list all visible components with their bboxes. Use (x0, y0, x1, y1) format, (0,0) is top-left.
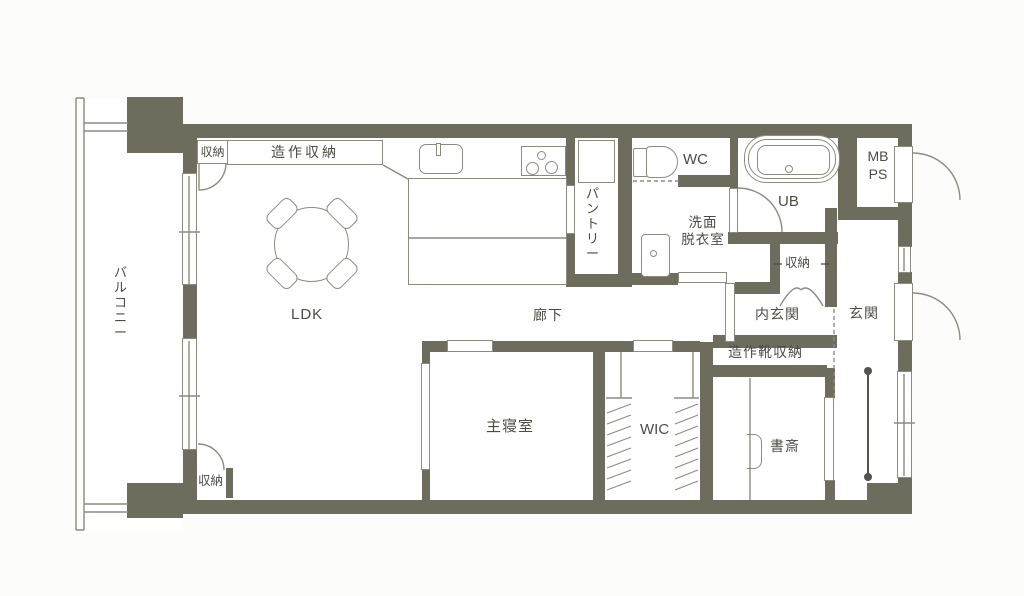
wall-study-right-b (825, 480, 835, 502)
wall-ub-mbps-divider (838, 138, 857, 208)
wall-washroom-right (770, 232, 780, 283)
sliding-partition-bedroom-ldk (421, 363, 430, 470)
ldk-label: LDK (291, 306, 323, 325)
wall-pantry-wc (618, 138, 632, 278)
wall-mbps-bottom (838, 207, 912, 220)
study-chair-icon (747, 434, 762, 469)
wall-bedroom-left-a (422, 341, 430, 363)
bathtub-inner (757, 145, 830, 175)
washroom-label: 洗面 脱衣室 (673, 215, 733, 249)
window-ldk-upper (182, 173, 197, 285)
storage-genkan-label: 収納 (785, 256, 810, 272)
kitchen-island (408, 178, 567, 285)
door-arc-mbps (913, 153, 960, 200)
window-genkan-small (898, 246, 911, 273)
closet-box-top-left: 収納 (197, 140, 228, 164)
stove-burner-icon (537, 151, 546, 160)
wall-corridor-top-pantry (566, 274, 632, 287)
wall-wc-ub-divider (730, 138, 738, 188)
wall-bedroom-left-b (422, 470, 430, 500)
wall-wc-south (678, 175, 730, 187)
sliding-door-bedroom (447, 340, 493, 352)
wall-block-top-left (127, 97, 183, 153)
wall-bedroom-top-b (493, 341, 593, 352)
wall-left-c (183, 450, 197, 500)
wall-left-b (183, 285, 197, 340)
study-label: 書斎 (770, 438, 800, 456)
stove-burner-icon (545, 161, 558, 174)
washbasin-drain-icon (650, 250, 657, 257)
wc-label: WC (683, 151, 708, 170)
wall-genkan-left (825, 208, 837, 307)
wall-right-d (898, 340, 912, 373)
genkan-label: 玄関 (849, 305, 879, 323)
door-arc-entrance (913, 293, 960, 340)
wall-left-a (183, 138, 197, 175)
balcony-label: バルコニー (114, 266, 128, 341)
wall-right-c (898, 272, 912, 283)
door-leaf-entrance (894, 283, 913, 341)
built-in-storage-box: 造作収納 (227, 140, 383, 165)
toilet-bowl-icon (646, 146, 678, 178)
inner-genkan-label: 内玄関 (755, 306, 800, 324)
wall-study-right-a (825, 368, 835, 398)
window-ldk-lower (182, 338, 197, 450)
storage-ldk-label: 収納 (198, 474, 223, 490)
bedroom-label: 主寝室 (486, 418, 534, 437)
wall-shoe-storage-bottom (713, 365, 827, 377)
built-in-storage-label: 造作収納 (271, 144, 339, 162)
wall-block-bottom-right (867, 483, 912, 500)
stove-burner-icon (526, 162, 539, 175)
corridor-label: 廊下 (533, 307, 563, 325)
wall-wic-top-a (605, 341, 633, 352)
sliding-door-wic (633, 340, 673, 352)
wall-wic-top-b (673, 341, 700, 352)
wall-block-bottom-left (127, 483, 183, 518)
sliding-door-inner-genkan (725, 283, 735, 342)
mbps-label: MB PS (858, 148, 898, 183)
sliding-door-study (824, 397, 834, 481)
storage-top-left-label: 収納 (200, 145, 224, 160)
wall-stub-storage-ldk (226, 468, 233, 498)
balcony-floor (85, 99, 183, 529)
kitchen-sink (419, 144, 463, 174)
wall-bottom (183, 500, 912, 514)
sink-faucet-icon (436, 143, 441, 156)
wall-west-of-study (700, 342, 713, 502)
sliding-door-washroom (678, 272, 727, 283)
wall-pantry-left-upper (566, 138, 575, 187)
bathroom-label: UB (778, 193, 799, 212)
wall-ub-bottom (728, 232, 838, 244)
bathtub-drain-icon (785, 165, 793, 173)
pantry-shelf (578, 140, 615, 183)
floor-plan: 収納 造作収納 (0, 0, 1024, 596)
wic-label: WIC (640, 421, 669, 440)
wall-inner-genkan-top (735, 282, 780, 294)
wall-bedroom-wic-divider (593, 341, 605, 500)
shoe-storage-label: 造作靴収納 (728, 344, 803, 362)
window-genkan-large (897, 371, 912, 478)
pantry-label: パントリー (586, 187, 600, 262)
